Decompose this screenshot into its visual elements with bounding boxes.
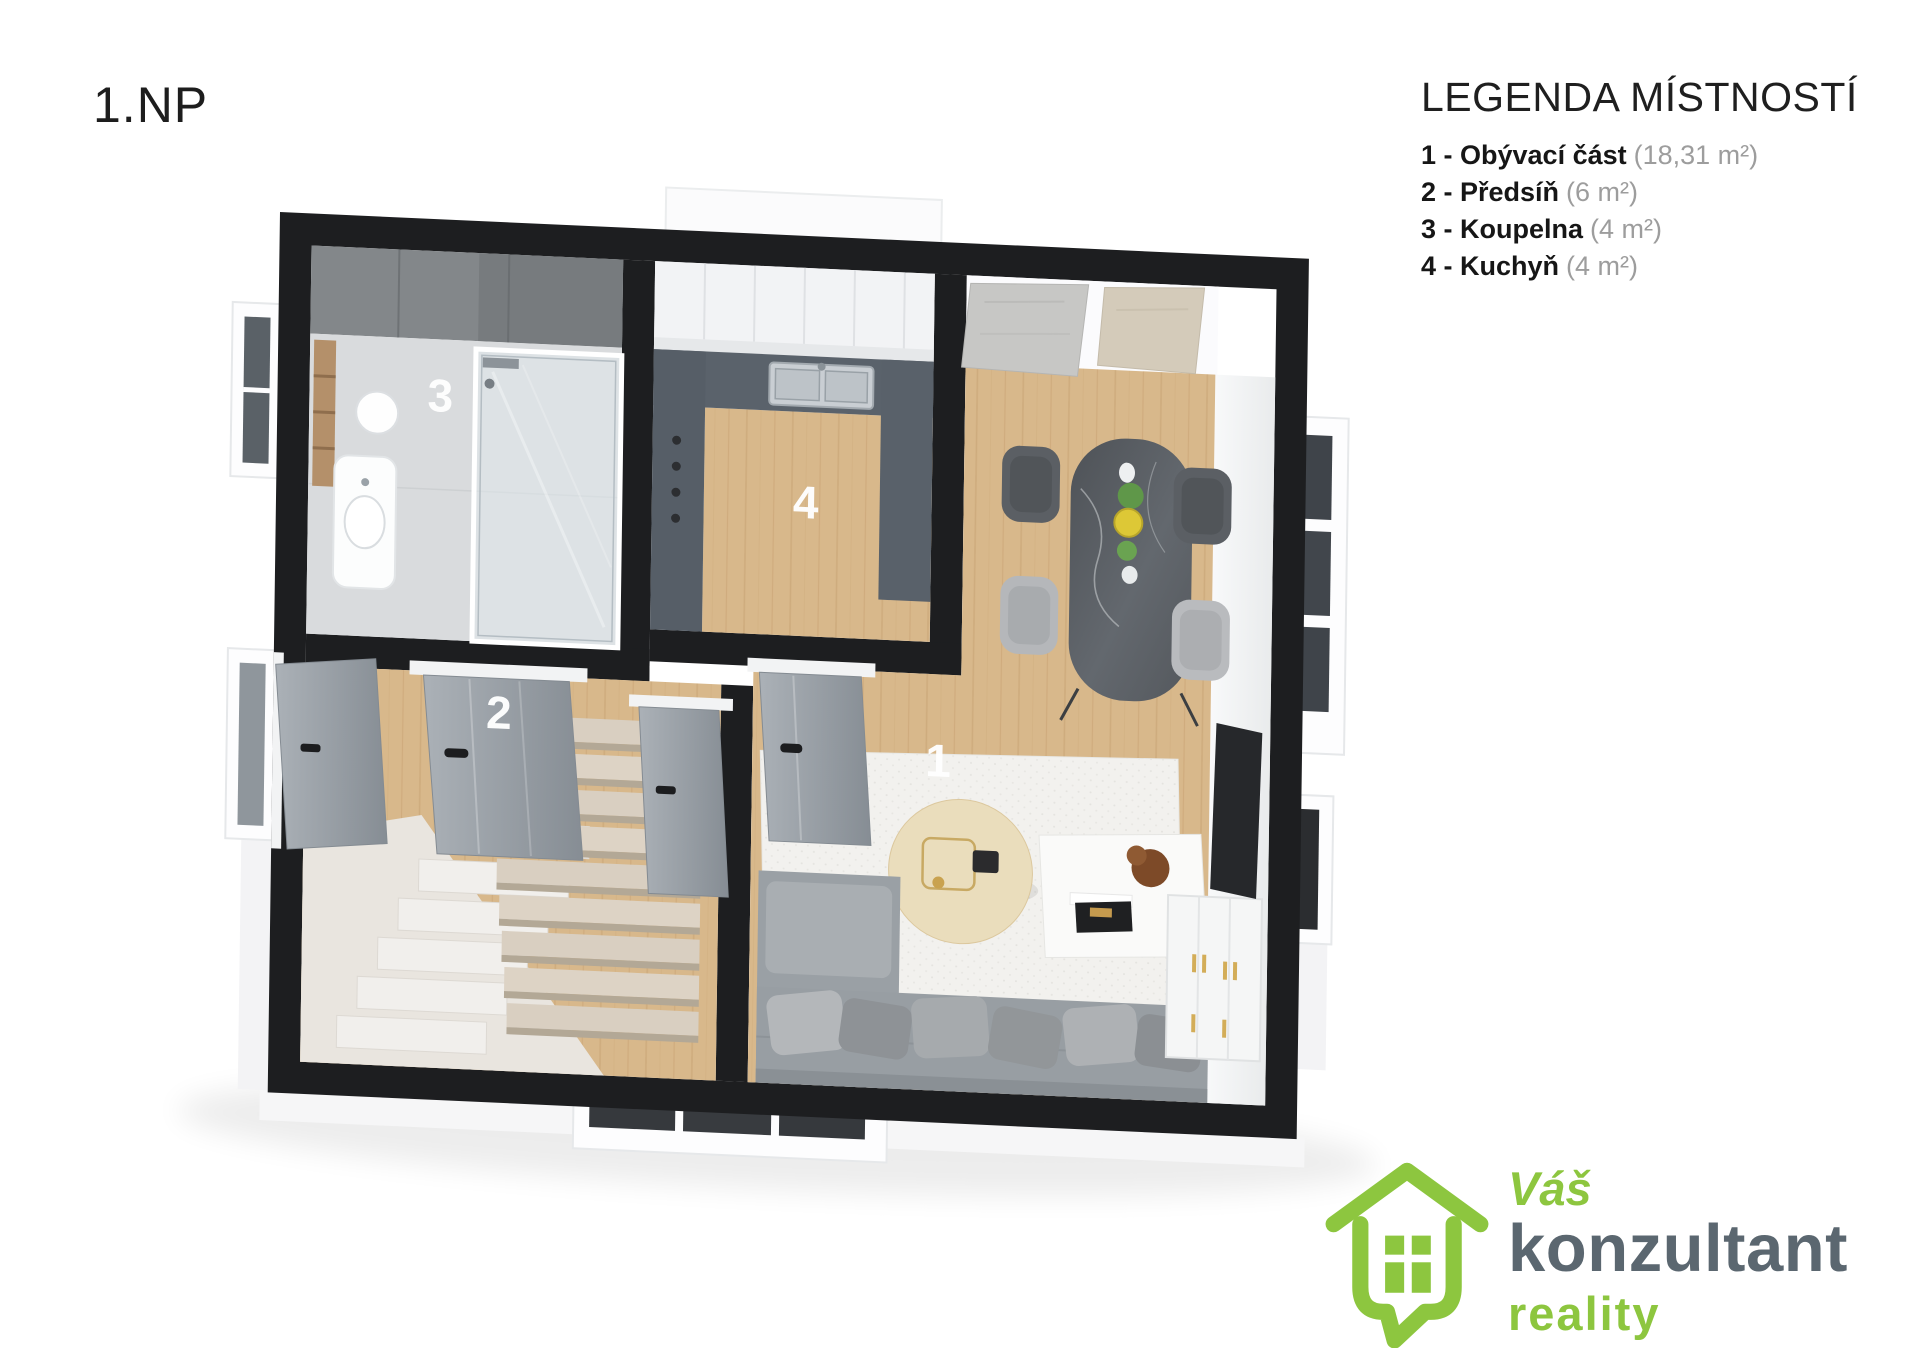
logo-word-reality: reality [1508, 1288, 1848, 1340]
room-label-obyvaci-cast: 1 [925, 734, 951, 787]
legend-item-4: 4 - Kuchyň(4 m²) [1421, 248, 1901, 285]
kitchen-sink [769, 360, 874, 409]
room-label-kuchyn: 4 [793, 476, 820, 529]
entry-door [225, 648, 276, 840]
room-label-koupelna: 3 [427, 369, 453, 422]
house-window [1385, 1236, 1431, 1293]
tv-panel [1210, 723, 1262, 899]
legend-item-1: 1 - Obývací část(18,31 m²) [1421, 137, 1901, 174]
sink-bowl [356, 391, 399, 435]
legend-item-2-area: (6 m²) [1566, 177, 1638, 207]
legend-item-4-label: 4 - Kuchyň [1421, 251, 1559, 281]
shower [472, 349, 622, 648]
legend-item-3: 3 - Koupelna(4 m²) [1421, 211, 1901, 248]
legend-item-2: 2 - Předsíň(6 m²) [1421, 174, 1901, 211]
bathroom-window [230, 302, 280, 478]
entry-door-leaf [271, 652, 390, 853]
legend-item-1-area: (18,31 m²) [1634, 140, 1759, 170]
legend-item-3-area: (4 m²) [1590, 214, 1662, 244]
bathtub [333, 455, 397, 590]
logo-word-vas: Váš [1508, 1164, 1848, 1213]
legend: LEGENDA MÍSTNOSTÍ 1 - Obývací část(18,31… [1421, 74, 1901, 285]
brand-logo: Váš konzultant reality [1322, 1148, 1848, 1348]
exterior-plinth-left [238, 801, 272, 1090]
wardrobe [1166, 895, 1262, 1061]
legend-item-3-label: 3 - Koupelna [1421, 214, 1583, 244]
room-label-predsin: 2 [486, 686, 512, 739]
legend-item-1-label: 1 - Obývací část [1421, 140, 1627, 170]
page: 1.NP [0, 0, 1920, 1357]
logo-word-konzultant: konzultant [1508, 1215, 1848, 1282]
legend-item-2-label: 2 - Předsíň [1421, 177, 1559, 207]
house-bubble-icon [1322, 1148, 1492, 1348]
room-kuchyn [650, 261, 935, 642]
legend-title: LEGENDA MÍSTNOSTÍ [1421, 74, 1901, 121]
logo-text: Váš konzultant reality [1508, 1148, 1848, 1340]
room-koupelna [306, 245, 623, 647]
building: 3 4 2 1 [177, 166, 1390, 1217]
legend-item-4-area: (4 m²) [1566, 251, 1638, 281]
